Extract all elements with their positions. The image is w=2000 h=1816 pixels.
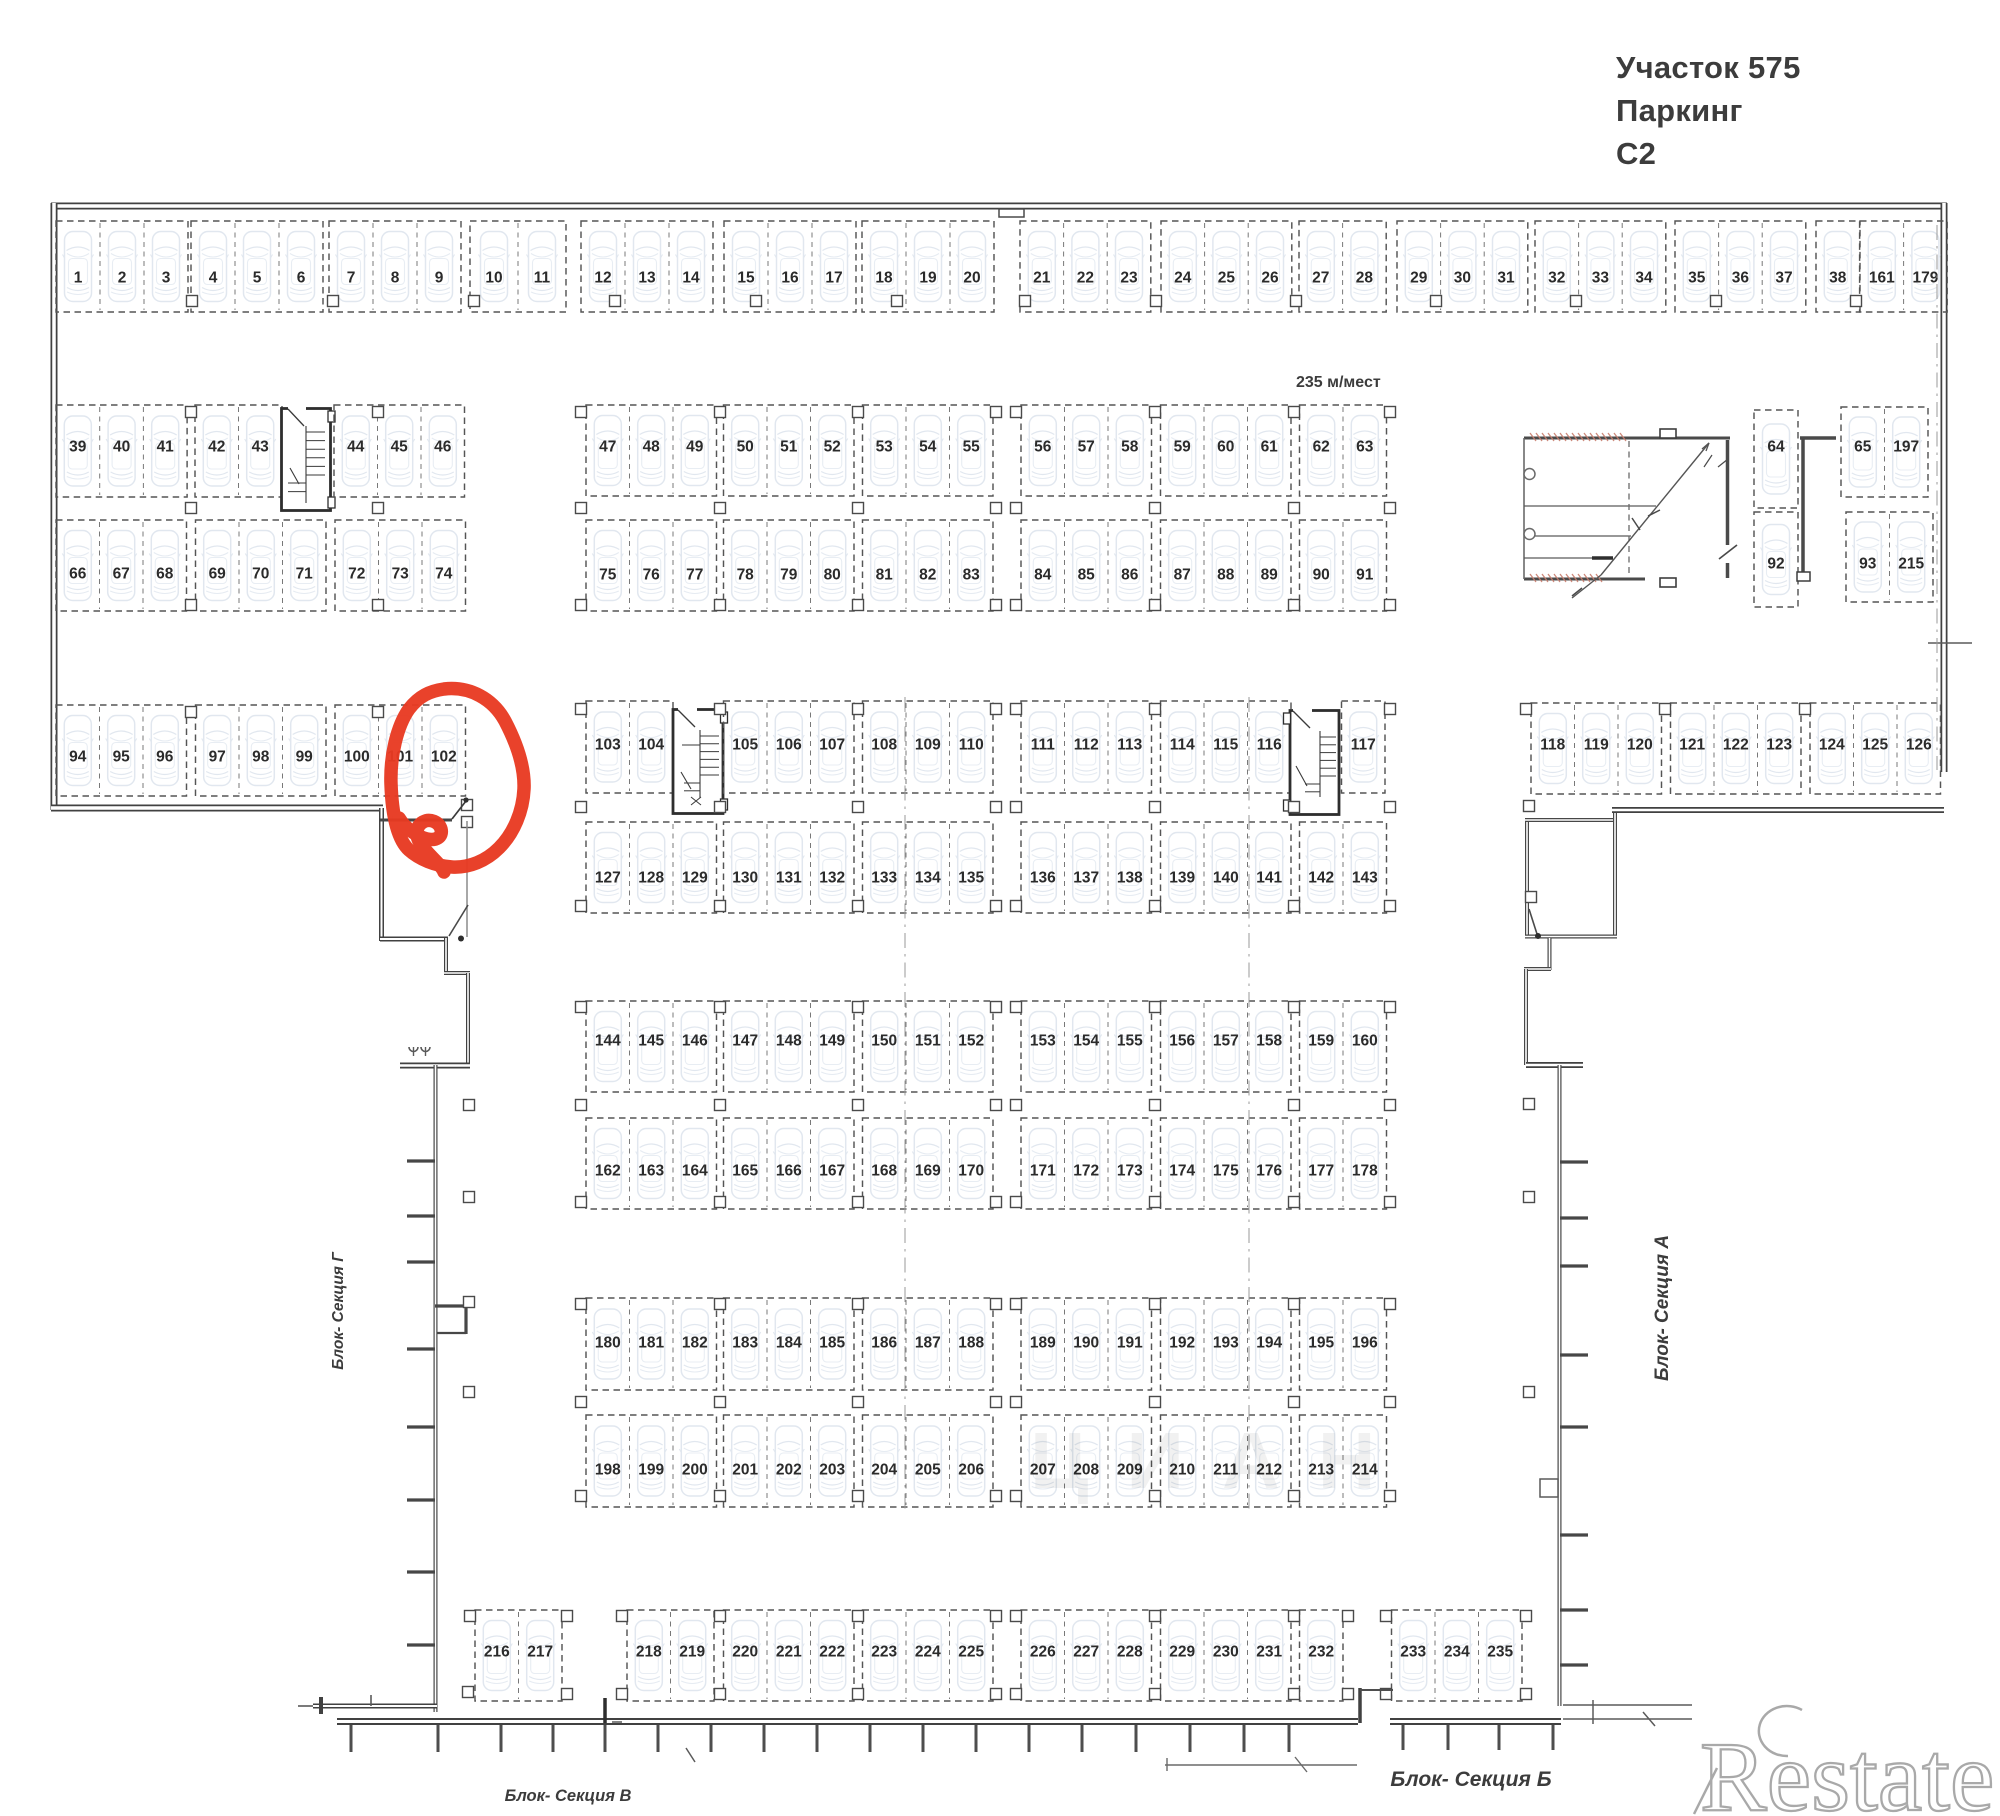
svg-text:230: 230 bbox=[1213, 1644, 1239, 1661]
svg-text:178: 178 bbox=[1352, 1163, 1378, 1180]
svg-text:126: 126 bbox=[1906, 737, 1932, 754]
svg-text:47: 47 bbox=[599, 439, 616, 456]
svg-text:Блок- Секция В: Блок- Секция В bbox=[505, 1787, 632, 1805]
svg-text:ЦИАН: ЦИАН bbox=[1030, 1416, 1413, 1505]
svg-text:90: 90 bbox=[1313, 567, 1330, 584]
svg-text:152: 152 bbox=[958, 1033, 984, 1050]
svg-text:188: 188 bbox=[958, 1335, 984, 1352]
svg-text:42: 42 bbox=[208, 439, 225, 456]
svg-text:60: 60 bbox=[1217, 439, 1234, 456]
svg-text:103: 103 bbox=[595, 737, 621, 754]
svg-text:33: 33 bbox=[1592, 270, 1610, 287]
svg-text:Блок- Секция Г: Блок- Секция Г bbox=[330, 1251, 347, 1370]
svg-text:79: 79 bbox=[780, 567, 798, 584]
svg-text:226: 226 bbox=[1030, 1644, 1056, 1661]
svg-text:194: 194 bbox=[1256, 1335, 1282, 1352]
svg-text:229: 229 bbox=[1169, 1644, 1195, 1661]
svg-text:187: 187 bbox=[915, 1335, 941, 1352]
svg-text:54: 54 bbox=[919, 439, 937, 456]
svg-text:65: 65 bbox=[1854, 439, 1872, 456]
svg-text:216: 216 bbox=[484, 1644, 510, 1661]
svg-text:49: 49 bbox=[686, 439, 704, 456]
svg-text:186: 186 bbox=[871, 1335, 897, 1352]
svg-text:169: 169 bbox=[915, 1163, 941, 1180]
svg-text:9: 9 bbox=[435, 270, 444, 287]
svg-text:156: 156 bbox=[1169, 1033, 1195, 1050]
svg-text:222: 222 bbox=[819, 1644, 845, 1661]
svg-text:44: 44 bbox=[347, 439, 365, 456]
svg-text:195: 195 bbox=[1308, 1335, 1334, 1352]
svg-text:82: 82 bbox=[919, 567, 936, 584]
svg-text:202: 202 bbox=[776, 1462, 802, 1479]
svg-text:231: 231 bbox=[1256, 1644, 1282, 1661]
svg-text:98: 98 bbox=[252, 749, 270, 766]
svg-text:172: 172 bbox=[1073, 1163, 1099, 1180]
svg-text:40: 40 bbox=[113, 439, 130, 456]
svg-text:28: 28 bbox=[1356, 270, 1374, 287]
svg-text:Блок- Секция А: Блок- Секция А bbox=[1652, 1235, 1673, 1381]
svg-text:18: 18 bbox=[875, 270, 893, 287]
svg-text:43: 43 bbox=[252, 439, 270, 456]
svg-text:91: 91 bbox=[1356, 567, 1374, 584]
svg-text:64: 64 bbox=[1767, 439, 1785, 456]
svg-text:125: 125 bbox=[1862, 737, 1888, 754]
svg-text:86: 86 bbox=[1121, 567, 1139, 584]
svg-text:17: 17 bbox=[825, 270, 842, 287]
svg-text:84: 84 bbox=[1034, 567, 1052, 584]
svg-text:145: 145 bbox=[638, 1033, 664, 1050]
svg-text:74: 74 bbox=[435, 566, 453, 583]
svg-text:5: 5 bbox=[253, 270, 262, 287]
svg-text:204: 204 bbox=[871, 1462, 897, 1479]
svg-text:180: 180 bbox=[595, 1335, 621, 1352]
svg-text:219: 219 bbox=[679, 1644, 705, 1661]
svg-text:227: 227 bbox=[1073, 1644, 1099, 1661]
svg-text:15: 15 bbox=[737, 270, 755, 287]
svg-text:114: 114 bbox=[1170, 737, 1195, 754]
svg-text:34: 34 bbox=[1635, 270, 1653, 287]
svg-text:Паркинг: Паркинг bbox=[1616, 93, 1743, 128]
svg-text:193: 193 bbox=[1213, 1335, 1239, 1352]
svg-text:201: 201 bbox=[732, 1462, 758, 1479]
svg-text:218: 218 bbox=[636, 1644, 662, 1661]
svg-text:Участок 575: Участок 575 bbox=[1616, 50, 1801, 85]
svg-text:14: 14 bbox=[682, 270, 700, 287]
svg-text:124: 124 bbox=[1819, 737, 1845, 754]
svg-text:190: 190 bbox=[1073, 1335, 1099, 1352]
svg-text:224: 224 bbox=[915, 1644, 941, 1661]
svg-text:21: 21 bbox=[1033, 270, 1051, 287]
svg-text:38: 38 bbox=[1829, 270, 1847, 287]
svg-text:153: 153 bbox=[1030, 1033, 1056, 1050]
svg-text:88: 88 bbox=[1217, 567, 1235, 584]
svg-text:130: 130 bbox=[732, 870, 758, 887]
svg-text:92: 92 bbox=[1767, 556, 1784, 573]
svg-text:116: 116 bbox=[1257, 737, 1282, 754]
svg-text:31: 31 bbox=[1497, 270, 1515, 287]
svg-text:37: 37 bbox=[1775, 270, 1792, 287]
svg-text:173: 173 bbox=[1117, 1163, 1143, 1180]
svg-text:85: 85 bbox=[1078, 567, 1096, 584]
svg-text:120: 120 bbox=[1627, 737, 1653, 754]
svg-text:117: 117 bbox=[1351, 737, 1376, 754]
svg-text:57: 57 bbox=[1078, 439, 1095, 456]
svg-text:76: 76 bbox=[643, 567, 661, 584]
svg-text:55: 55 bbox=[963, 439, 981, 456]
svg-text:20: 20 bbox=[963, 270, 980, 287]
svg-text:199: 199 bbox=[638, 1462, 664, 1479]
svg-text:181: 181 bbox=[638, 1335, 664, 1352]
svg-text:61: 61 bbox=[1261, 439, 1279, 456]
svg-text:108: 108 bbox=[871, 737, 897, 754]
svg-text:51: 51 bbox=[780, 439, 798, 456]
svg-text:221: 221 bbox=[776, 1644, 802, 1661]
svg-text:123: 123 bbox=[1766, 737, 1792, 754]
svg-text:144: 144 bbox=[595, 1033, 621, 1050]
svg-text:203: 203 bbox=[819, 1462, 845, 1479]
svg-text:220: 220 bbox=[732, 1644, 758, 1661]
svg-text:87: 87 bbox=[1174, 567, 1191, 584]
svg-text:128: 128 bbox=[638, 870, 664, 887]
svg-text:206: 206 bbox=[958, 1462, 984, 1479]
svg-text:95: 95 bbox=[113, 749, 131, 766]
svg-text:115: 115 bbox=[1213, 737, 1238, 754]
svg-text:215: 215 bbox=[1898, 556, 1924, 573]
svg-text:Блок- Секция Б: Блок- Секция Б bbox=[1390, 1768, 1551, 1791]
svg-text:83: 83 bbox=[963, 567, 981, 584]
svg-text:131: 131 bbox=[776, 870, 802, 887]
svg-text:102: 102 bbox=[431, 749, 457, 766]
svg-text:70: 70 bbox=[252, 566, 269, 583]
svg-text:69: 69 bbox=[209, 566, 227, 583]
svg-text:25: 25 bbox=[1218, 270, 1236, 287]
svg-text:104: 104 bbox=[638, 737, 664, 754]
svg-text:62: 62 bbox=[1313, 439, 1330, 456]
svg-text:185: 185 bbox=[819, 1335, 845, 1352]
svg-text:162: 162 bbox=[595, 1163, 621, 1180]
svg-text:78: 78 bbox=[737, 567, 755, 584]
svg-text:97: 97 bbox=[209, 749, 226, 766]
svg-text:12: 12 bbox=[594, 270, 611, 287]
svg-text:161: 161 bbox=[1869, 270, 1895, 287]
svg-text:196: 196 bbox=[1352, 1335, 1378, 1352]
svg-text:29: 29 bbox=[1410, 270, 1428, 287]
svg-text:143: 143 bbox=[1352, 870, 1378, 887]
svg-text:107: 107 bbox=[819, 737, 845, 754]
svg-text:135: 135 bbox=[958, 870, 984, 887]
svg-text:59: 59 bbox=[1174, 439, 1192, 456]
svg-text:3: 3 bbox=[162, 270, 171, 287]
svg-text:127: 127 bbox=[595, 870, 621, 887]
svg-text:46: 46 bbox=[434, 439, 452, 456]
svg-text:80: 80 bbox=[824, 567, 841, 584]
svg-text:192: 192 bbox=[1169, 1335, 1195, 1352]
svg-text:234: 234 bbox=[1444, 1644, 1470, 1661]
svg-text:118: 118 bbox=[1540, 737, 1565, 754]
svg-text:58: 58 bbox=[1121, 439, 1139, 456]
svg-text:157: 157 bbox=[1213, 1033, 1239, 1050]
svg-text:235 м/мест: 235 м/мест bbox=[1296, 374, 1381, 391]
svg-text:165: 165 bbox=[732, 1163, 758, 1180]
svg-text:30: 30 bbox=[1454, 270, 1471, 287]
svg-text:45: 45 bbox=[391, 439, 409, 456]
svg-text:94: 94 bbox=[69, 749, 87, 766]
svg-text:11: 11 bbox=[534, 270, 551, 287]
svg-text:4: 4 bbox=[209, 270, 218, 287]
svg-text:99: 99 bbox=[296, 749, 314, 766]
svg-text:160: 160 bbox=[1352, 1033, 1378, 1050]
svg-text:68: 68 bbox=[156, 566, 174, 583]
svg-text:6: 6 bbox=[297, 270, 306, 287]
svg-text:233: 233 bbox=[1400, 1644, 1426, 1661]
svg-text:166: 166 bbox=[776, 1163, 802, 1180]
svg-text:106: 106 bbox=[776, 737, 802, 754]
svg-text:151: 151 bbox=[915, 1033, 941, 1050]
svg-text:140: 140 bbox=[1213, 870, 1239, 887]
svg-text:63: 63 bbox=[1356, 439, 1374, 456]
svg-text:71: 71 bbox=[296, 566, 314, 583]
svg-text:26: 26 bbox=[1261, 270, 1279, 287]
svg-text:1: 1 bbox=[74, 270, 83, 287]
svg-text:142: 142 bbox=[1308, 870, 1334, 887]
svg-text:110: 110 bbox=[959, 737, 984, 754]
svg-text:182: 182 bbox=[682, 1335, 708, 1352]
svg-text:170: 170 bbox=[958, 1163, 984, 1180]
svg-text:24: 24 bbox=[1174, 270, 1192, 287]
svg-text:139: 139 bbox=[1169, 870, 1195, 887]
svg-text:133: 133 bbox=[871, 870, 897, 887]
svg-text:158: 158 bbox=[1256, 1033, 1282, 1050]
svg-text:150: 150 bbox=[871, 1033, 897, 1050]
svg-text:191: 191 bbox=[1117, 1335, 1143, 1352]
svg-text:225: 225 bbox=[958, 1644, 984, 1661]
svg-text:22: 22 bbox=[1077, 270, 1094, 287]
svg-text:89: 89 bbox=[1261, 567, 1279, 584]
svg-text:121: 121 bbox=[1679, 737, 1705, 754]
svg-text:228: 228 bbox=[1117, 1644, 1143, 1661]
svg-text:81: 81 bbox=[876, 567, 894, 584]
svg-text:113: 113 bbox=[1117, 737, 1142, 754]
svg-text:149: 149 bbox=[819, 1033, 845, 1050]
svg-text:111: 111 bbox=[1031, 737, 1056, 754]
svg-text:183: 183 bbox=[732, 1335, 758, 1352]
svg-text:36: 36 bbox=[1732, 270, 1750, 287]
svg-text:16: 16 bbox=[781, 270, 799, 287]
svg-text:50: 50 bbox=[737, 439, 754, 456]
svg-text:2: 2 bbox=[118, 270, 127, 287]
svg-text:189: 189 bbox=[1030, 1335, 1056, 1352]
svg-text:112: 112 bbox=[1074, 737, 1099, 754]
svg-text:175: 175 bbox=[1213, 1163, 1239, 1180]
svg-text:163: 163 bbox=[638, 1163, 664, 1180]
svg-text:77: 77 bbox=[686, 567, 703, 584]
svg-text:75: 75 bbox=[599, 567, 617, 584]
svg-text:146: 146 bbox=[682, 1033, 708, 1050]
svg-text:179: 179 bbox=[1912, 270, 1938, 287]
svg-text:С2: С2 bbox=[1616, 136, 1656, 171]
svg-text:164: 164 bbox=[682, 1163, 708, 1180]
svg-text:53: 53 bbox=[876, 439, 894, 456]
svg-text:232: 232 bbox=[1308, 1644, 1334, 1661]
svg-text:200: 200 bbox=[682, 1462, 708, 1479]
svg-text:72: 72 bbox=[348, 566, 365, 583]
svg-text:67: 67 bbox=[113, 566, 130, 583]
svg-text:48: 48 bbox=[643, 439, 661, 456]
svg-text:19: 19 bbox=[919, 270, 937, 287]
svg-text:10: 10 bbox=[485, 270, 502, 287]
svg-text:138: 138 bbox=[1117, 870, 1143, 887]
svg-text:8: 8 bbox=[391, 270, 400, 287]
svg-text:109: 109 bbox=[915, 737, 941, 754]
svg-text:184: 184 bbox=[776, 1335, 802, 1352]
svg-text:132: 132 bbox=[819, 870, 845, 887]
svg-text:93: 93 bbox=[1859, 556, 1877, 573]
svg-text:147: 147 bbox=[732, 1033, 758, 1050]
svg-text:171: 171 bbox=[1030, 1163, 1056, 1180]
svg-text:174: 174 bbox=[1169, 1163, 1195, 1180]
svg-text:100: 100 bbox=[344, 749, 370, 766]
svg-text:27: 27 bbox=[1312, 270, 1329, 287]
svg-text:66: 66 bbox=[69, 566, 87, 583]
svg-text:197: 197 bbox=[1893, 439, 1919, 456]
svg-text:23: 23 bbox=[1120, 270, 1138, 287]
svg-text:73: 73 bbox=[392, 566, 410, 583]
svg-text:137: 137 bbox=[1073, 870, 1099, 887]
svg-text:13: 13 bbox=[638, 270, 656, 287]
svg-text:205: 205 bbox=[915, 1462, 941, 1479]
svg-text:168: 168 bbox=[871, 1163, 897, 1180]
svg-text:35: 35 bbox=[1688, 270, 1706, 287]
svg-text:56: 56 bbox=[1034, 439, 1052, 456]
svg-text:129: 129 bbox=[682, 870, 708, 887]
svg-text:217: 217 bbox=[527, 1644, 553, 1661]
svg-text:Restate: Restate bbox=[1700, 1721, 1994, 1816]
svg-text:141: 141 bbox=[1256, 870, 1282, 887]
svg-text:122: 122 bbox=[1723, 737, 1749, 754]
svg-text:39: 39 bbox=[69, 439, 87, 456]
svg-text:176: 176 bbox=[1256, 1163, 1282, 1180]
svg-text:96: 96 bbox=[156, 749, 174, 766]
svg-text:167: 167 bbox=[819, 1163, 845, 1180]
svg-text:105: 105 bbox=[732, 737, 758, 754]
svg-text:155: 155 bbox=[1117, 1033, 1143, 1050]
svg-text:7: 7 bbox=[347, 270, 356, 287]
svg-text:223: 223 bbox=[871, 1644, 897, 1661]
svg-text:148: 148 bbox=[776, 1033, 802, 1050]
svg-text:159: 159 bbox=[1308, 1033, 1334, 1050]
svg-text:177: 177 bbox=[1308, 1163, 1334, 1180]
svg-text:235: 235 bbox=[1487, 1644, 1513, 1661]
svg-text:32: 32 bbox=[1548, 270, 1565, 287]
svg-text:41: 41 bbox=[157, 439, 175, 456]
svg-text:136: 136 bbox=[1030, 870, 1056, 887]
svg-text:119: 119 bbox=[1584, 737, 1609, 754]
svg-text:198: 198 bbox=[595, 1462, 621, 1479]
svg-text:134: 134 bbox=[915, 870, 941, 887]
svg-text:52: 52 bbox=[824, 439, 841, 456]
svg-text:154: 154 bbox=[1073, 1033, 1099, 1050]
